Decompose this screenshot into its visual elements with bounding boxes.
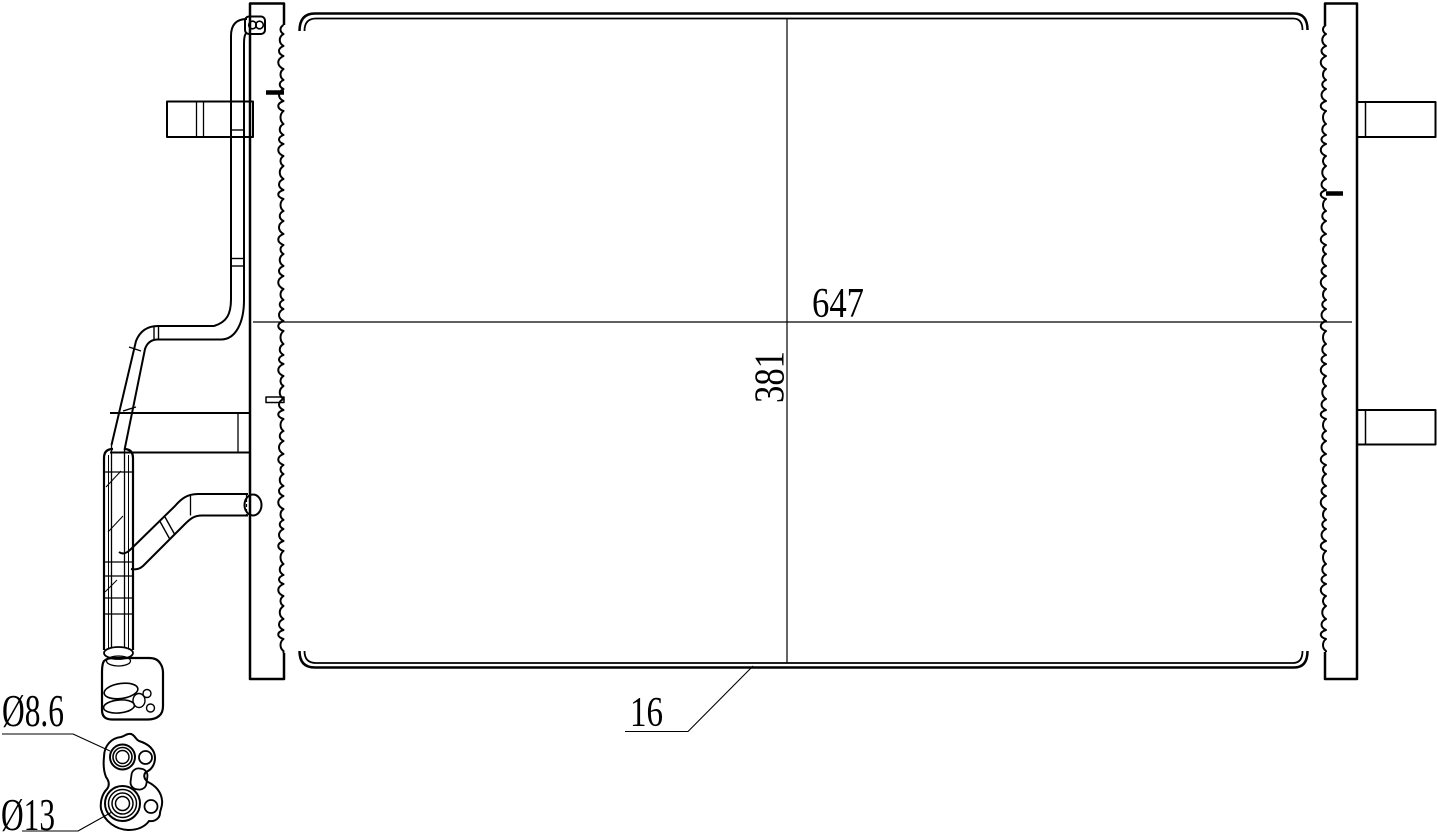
inlet-pipe bbox=[112, 17, 266, 451]
right-tank bbox=[1321, 4, 1357, 680]
fitting-flange-detail bbox=[101, 734, 162, 830]
left-tank-fin-edge bbox=[278, 25, 283, 653]
outlet-pipe bbox=[119, 494, 262, 569]
core-top-plate-outer bbox=[300, 14, 1308, 32]
small-port-leader-line bbox=[2, 734, 110, 751]
flange-bolt-hole-lower bbox=[145, 800, 158, 813]
condenser-drawing bbox=[2, 4, 1436, 832]
left-tank bbox=[250, 4, 284, 680]
core-top-plate-inner bbox=[305, 19, 1303, 32]
mounting-bracket-right-lower bbox=[1358, 410, 1436, 445]
right-tank-fin-edge bbox=[1321, 25, 1326, 652]
condenser-core bbox=[253, 14, 1352, 668]
core-bottom-plate-inner bbox=[305, 651, 1303, 663]
dimension-small-port: Ø8.6 bbox=[2, 686, 64, 736]
dimension-core-height: 381 bbox=[748, 351, 794, 403]
connector-block bbox=[102, 658, 163, 720]
drawing-canvas: 647 381 16 Ø8.6 Ø13 bbox=[0, 0, 1437, 834]
mounting-bracket-right-upper bbox=[1358, 102, 1436, 137]
mounting-bracket-left-upper bbox=[167, 102, 253, 138]
large-port bbox=[105, 786, 140, 821]
dimension-large-port: Ø13 bbox=[1, 790, 55, 834]
receiver-drier bbox=[104, 445, 133, 666]
flange-bolt-hole-upper bbox=[139, 751, 152, 764]
core-bottom-plate-outer bbox=[300, 651, 1308, 668]
dimension-core-width: 647 bbox=[812, 281, 864, 327]
right-tank-outline bbox=[1325, 4, 1357, 680]
dimension-core-depth: 16 bbox=[630, 690, 663, 736]
